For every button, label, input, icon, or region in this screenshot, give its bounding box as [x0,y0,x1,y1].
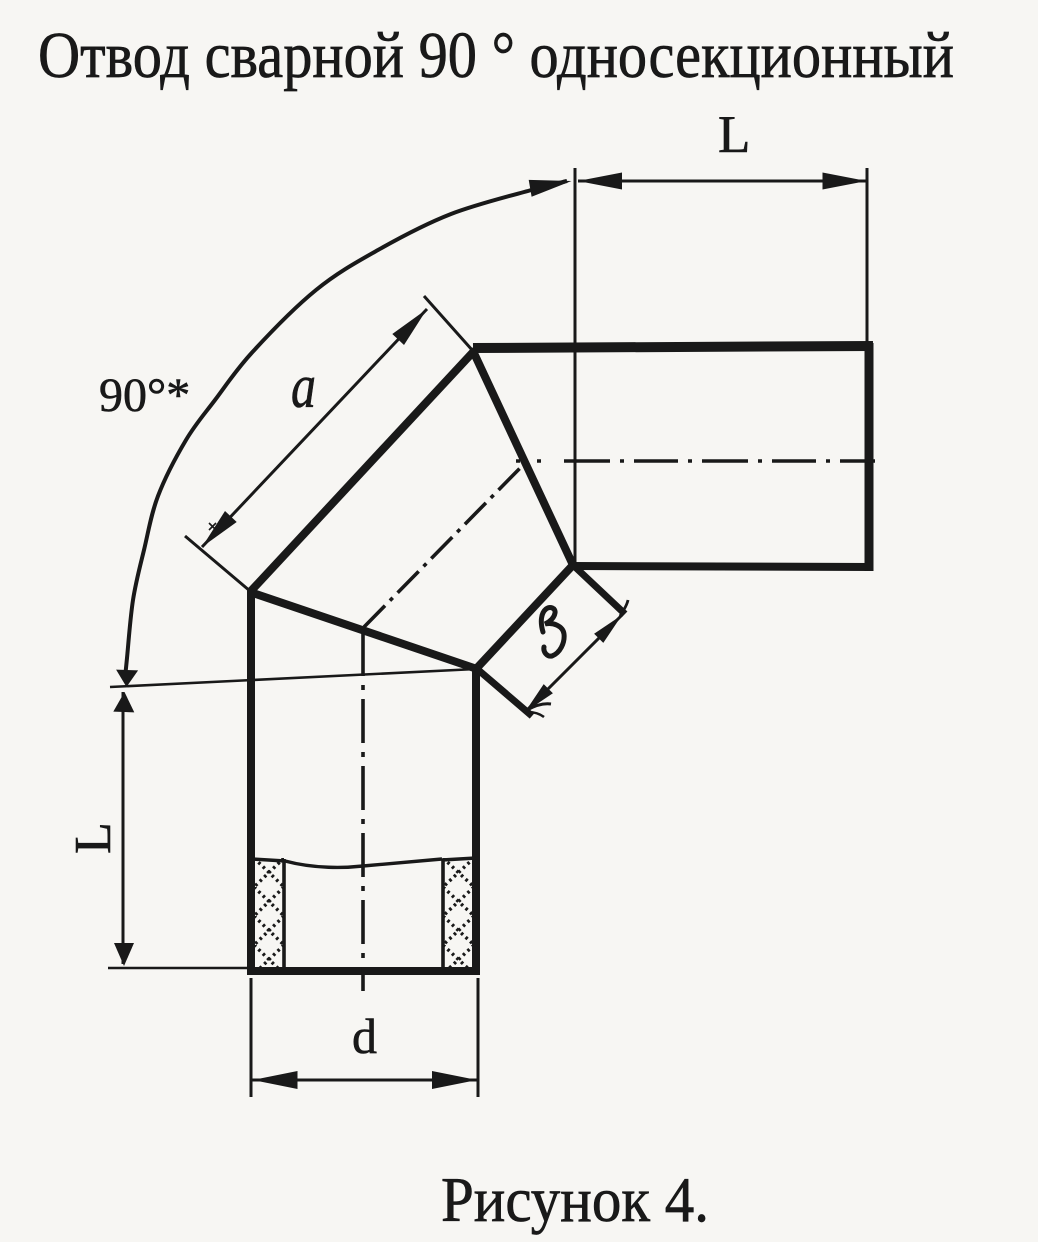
svg-text:d: d [352,1008,377,1064]
svg-text:Рисунок 4.: Рисунок 4. [441,1164,709,1235]
svg-text:90°*: 90°* [99,369,190,422]
svg-text:L: L [65,822,122,854]
svg-text:Отвод сварной 90 ° односекцион: Отвод сварной 90 ° односекционный [38,19,954,92]
svg-text:a: a [291,353,316,421]
svg-text:L: L [718,106,750,164]
